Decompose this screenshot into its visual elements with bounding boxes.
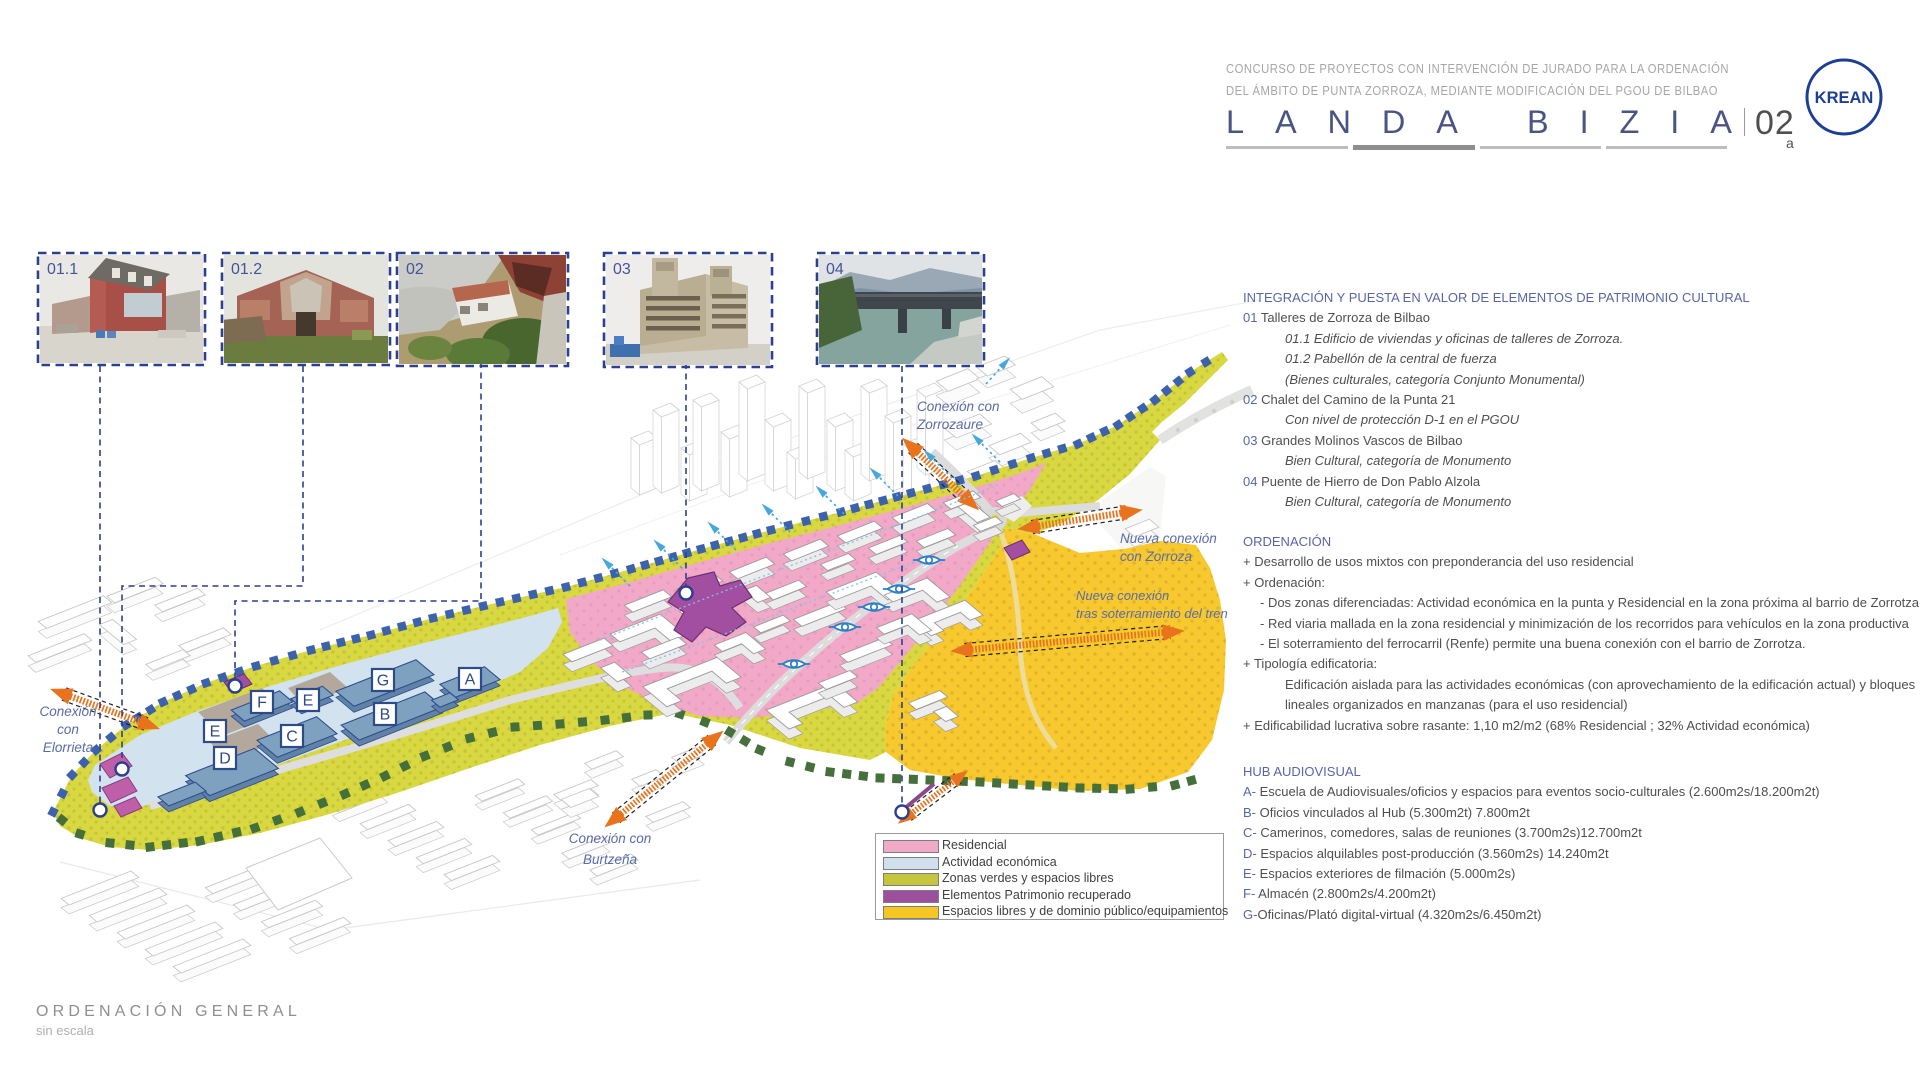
svg-text:04: 04 xyxy=(826,261,844,278)
svg-text:D: D xyxy=(219,751,231,768)
svg-text:con: con xyxy=(57,722,79,737)
svg-text:Zorrozaure: Zorrozaure xyxy=(916,417,983,432)
svg-text:01.2: 01.2 xyxy=(231,261,262,278)
svg-text:tras soterramiento del tren: tras soterramiento del tren xyxy=(1076,606,1228,621)
svg-text:C: C xyxy=(286,729,298,746)
svg-text:Elorrieta: Elorrieta xyxy=(43,740,94,755)
svg-text:Burtzeña: Burtzeña xyxy=(583,852,638,867)
svg-text:B: B xyxy=(380,707,391,724)
svg-text:KREAN: KREAN xyxy=(1815,89,1874,107)
svg-text:02: 02 xyxy=(406,261,424,278)
svg-text:Nueva conexión: Nueva conexión xyxy=(1076,588,1169,603)
svg-text:Nueva conexión: Nueva conexión xyxy=(1120,531,1217,546)
svg-text:A: A xyxy=(465,672,476,689)
svg-text:Conexión con: Conexión con xyxy=(917,399,1000,414)
svg-text:01.1: 01.1 xyxy=(47,261,78,278)
svg-text:G: G xyxy=(377,673,389,690)
svg-text:E: E xyxy=(303,693,314,710)
svg-text:F: F xyxy=(257,695,267,712)
svg-text:Conexión con: Conexión con xyxy=(569,831,652,846)
svg-text:03: 03 xyxy=(613,261,631,278)
svg-text:Conexión: Conexión xyxy=(39,704,96,719)
svg-text:E: E xyxy=(210,724,221,741)
svg-text:con Zorroza: con Zorroza xyxy=(1120,549,1193,564)
